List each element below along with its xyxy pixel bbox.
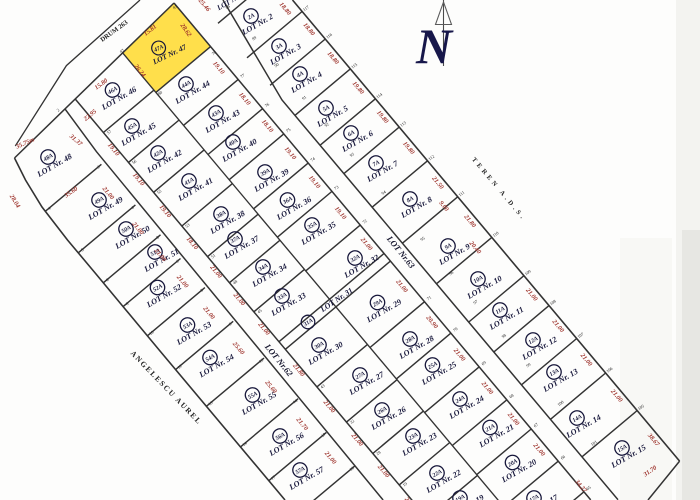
svg-text:N: N [415, 18, 454, 74]
